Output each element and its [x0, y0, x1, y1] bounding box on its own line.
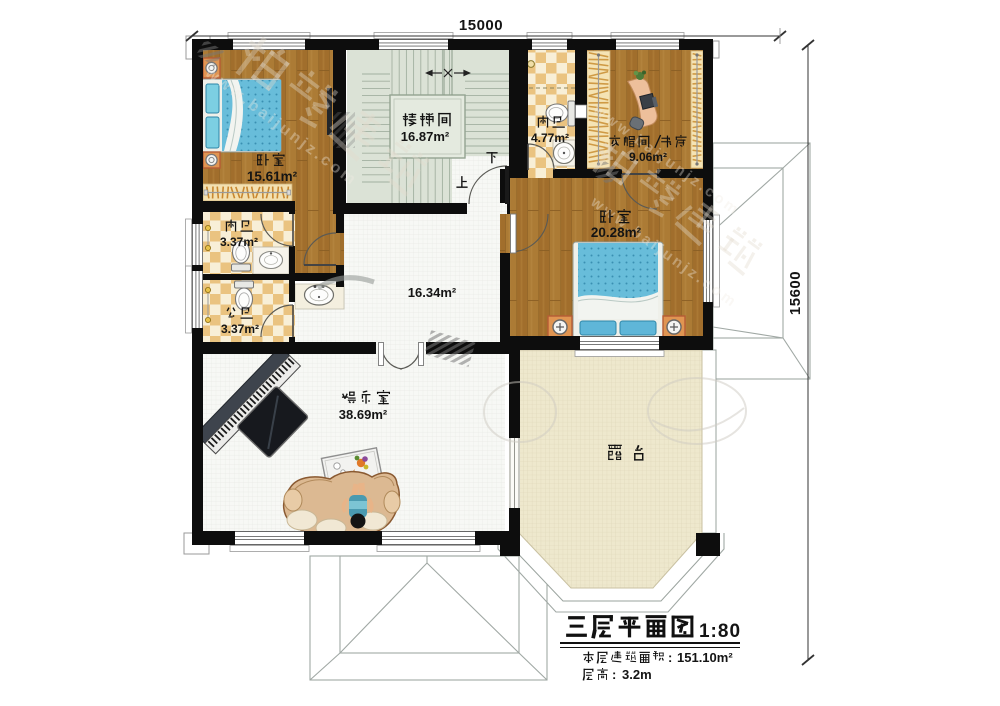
svg-text::: : — [612, 667, 616, 682]
svg-text:16.34m²: 16.34m² — [408, 285, 457, 300]
svg-text:15000: 15000 — [459, 17, 503, 34]
svg-text:38.69m²: 38.69m² — [339, 407, 388, 422]
svg-text:1:80: 1:80 — [699, 621, 741, 642]
svg-text:20.28m²: 20.28m² — [591, 225, 642, 240]
svg-text:3.37m²: 3.37m² — [221, 322, 259, 336]
svg-text:9.06m²: 9.06m² — [629, 150, 667, 164]
svg-text::: : — [668, 650, 672, 665]
svg-text:151.10m²: 151.10m² — [677, 650, 733, 665]
svg-text:3.2m: 3.2m — [622, 667, 652, 682]
svg-text:16.87m²: 16.87m² — [401, 129, 450, 144]
svg-text:4.77m²: 4.77m² — [531, 131, 569, 145]
svg-text:15600: 15600 — [787, 271, 804, 315]
svg-text:3.37m²: 3.37m² — [220, 235, 258, 249]
svg-text:15.61m²: 15.61m² — [247, 169, 298, 184]
